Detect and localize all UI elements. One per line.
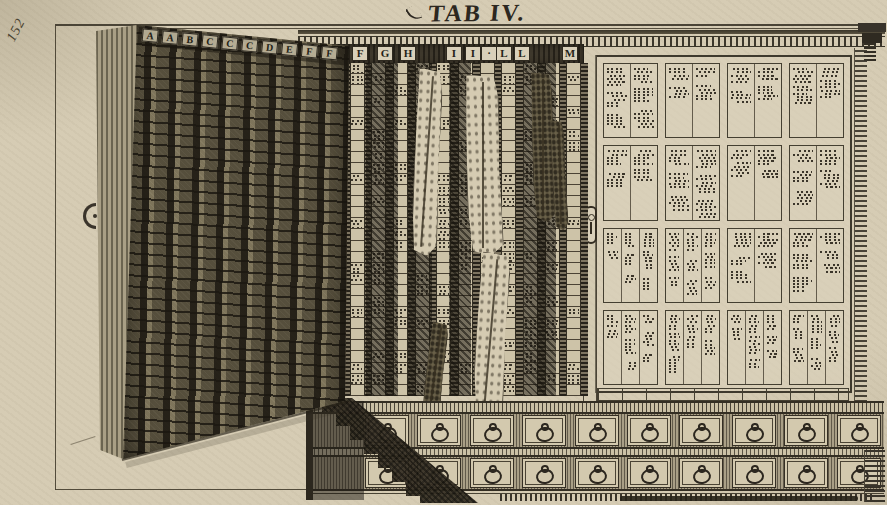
label-script-line (607, 160, 620, 162)
cell-label-specks (504, 242, 515, 244)
label-column (745, 311, 763, 384)
label-script-line (609, 254, 618, 256)
label-script-line (764, 170, 778, 172)
label-column (604, 311, 621, 384)
compartment-cell (351, 296, 364, 307)
label-panel (665, 310, 720, 385)
label-text-block (758, 86, 778, 101)
label-script-line (670, 186, 689, 188)
label-text-block (820, 233, 840, 245)
label-script-line (688, 245, 698, 247)
label-script-line (707, 321, 716, 323)
label-script-line (830, 321, 840, 323)
label-text-block (731, 162, 751, 177)
label-script-line (645, 233, 654, 235)
label-script-line (824, 177, 840, 179)
compartment-cell (351, 152, 364, 163)
compartment-cell (567, 152, 580, 163)
label-script-line (669, 362, 677, 364)
label-text-block (829, 315, 840, 327)
label-text-block (607, 173, 627, 188)
label-script-line (731, 91, 744, 93)
right-label-panel (595, 55, 852, 393)
label-text-block (696, 85, 716, 100)
cell-label-specks (440, 212, 449, 214)
label-text-block (820, 150, 840, 165)
label-text-block (643, 315, 654, 323)
compartment-cell (502, 363, 515, 374)
label-column (604, 229, 621, 302)
label-text-block (758, 253, 778, 268)
label-script-line (625, 242, 634, 244)
cell-label-specks (351, 220, 362, 222)
label-script-line (812, 328, 822, 330)
label-column (639, 229, 657, 302)
label-column (639, 311, 657, 384)
label-text-block (793, 233, 813, 248)
cell-label-specks (351, 279, 362, 281)
label-script-line (733, 154, 751, 156)
label-script-line (735, 233, 751, 235)
cabinet-right-edge-hatch (854, 48, 867, 412)
ring-pull-icon (535, 425, 555, 442)
compartment-cell (351, 241, 364, 252)
label-script-line (749, 363, 758, 365)
label-script-line (634, 75, 650, 77)
label-script-line (750, 359, 760, 361)
label-script-line (751, 315, 760, 317)
cell-label-specks (439, 187, 449, 189)
compartment-cell (567, 329, 580, 340)
door-letter: C (201, 34, 218, 48)
label-script-line (811, 347, 820, 349)
cell-label-specks (439, 242, 449, 244)
label-script-line (795, 331, 804, 333)
label-script-line (669, 269, 679, 271)
label-script-line (628, 368, 636, 370)
label-script-line (832, 354, 840, 356)
label-script-line (669, 368, 677, 370)
label-panel (727, 63, 782, 138)
label-script-line (758, 245, 773, 247)
label-script-line (832, 341, 840, 343)
label-script-line (731, 97, 750, 99)
label-text-block (625, 275, 636, 283)
label-script-line (676, 90, 689, 92)
label-script-line (646, 338, 654, 340)
cell-label-specks (438, 65, 450, 67)
label-script-line (705, 344, 712, 346)
label-script-line (767, 328, 776, 330)
label-script-line (731, 277, 748, 279)
cell-label-specks (568, 76, 579, 78)
label-column (816, 64, 843, 137)
cell-label-specks (353, 65, 362, 67)
compartment-cell (351, 318, 364, 329)
label-script-line (734, 321, 742, 323)
compartment-cell (502, 229, 515, 240)
label-script-line (645, 236, 654, 238)
label-script-line (793, 286, 806, 288)
compartment-cell (502, 141, 515, 152)
compartment-cell (351, 96, 364, 107)
drawer-rail-top (306, 401, 884, 414)
label-script-line (607, 236, 617, 238)
cell-label-specks (504, 253, 514, 255)
ring-pull-icon (797, 468, 817, 485)
drawer (522, 458, 566, 488)
label-script-line (607, 71, 623, 73)
label-column (621, 311, 639, 384)
label-panel (727, 145, 782, 220)
compartment-cell (351, 141, 364, 152)
cell-label-specks (505, 364, 514, 366)
drawer (470, 415, 514, 446)
label-text-block (625, 233, 636, 248)
label-script-line (701, 160, 716, 162)
plate-scratch (70, 436, 95, 445)
drawer (732, 415, 776, 446)
label-script-line (824, 264, 840, 266)
label-script-line (629, 362, 636, 364)
label-script-line (758, 262, 774, 264)
label-script-line (690, 321, 698, 323)
label-script-line (669, 173, 688, 175)
label-text-block (687, 315, 698, 333)
compartment-cell (567, 285, 580, 296)
compartment-cell (351, 252, 364, 263)
label-script-line (820, 236, 837, 238)
label-script-line (608, 251, 618, 253)
label-script-line (822, 75, 840, 77)
label-script-line (708, 325, 716, 327)
label-column (604, 146, 630, 219)
label-script-line (707, 315, 716, 317)
label-script-line (669, 343, 679, 345)
label-text-block (634, 88, 654, 103)
label-script-line (614, 99, 627, 101)
label-script-line (825, 233, 840, 235)
label-column (754, 146, 781, 219)
label-script-line (705, 259, 715, 261)
label-text-block (643, 354, 654, 362)
base-right-plinth (864, 450, 885, 502)
cell-label-specks (569, 142, 579, 144)
label-text-block (793, 348, 804, 363)
label-script-line (607, 102, 620, 104)
label-script-line (673, 205, 689, 207)
label-script-line (825, 83, 840, 85)
compartment-cell (567, 207, 580, 218)
label-script-line (793, 86, 808, 88)
label-script-line (793, 328, 800, 330)
label-script-line (825, 239, 840, 241)
label-script-line (702, 154, 716, 156)
label-script-line (671, 236, 680, 238)
label-text-block (634, 110, 654, 128)
label-script-line (625, 263, 633, 265)
cell-label-specks (569, 135, 579, 137)
label-script-line (643, 285, 650, 287)
label-script-line (698, 200, 716, 202)
label-script-line (824, 174, 840, 176)
label-script-line (644, 245, 654, 247)
label-script-line (732, 94, 751, 96)
label-script-line (645, 354, 654, 356)
label-script-line (689, 266, 698, 268)
label-script-line (699, 71, 716, 73)
cell-label-specks (351, 123, 363, 125)
label-script-line (749, 331, 758, 333)
compartment-cell (351, 185, 364, 196)
label-script-line (758, 160, 776, 162)
label-script-line (793, 203, 809, 205)
label-script-line (731, 260, 746, 262)
label-script-line (691, 315, 698, 317)
label-text-block (705, 277, 716, 289)
door-letter: E (281, 42, 298, 56)
label-text-block (749, 315, 760, 333)
label-script-line (701, 213, 716, 215)
column-divider-hatch (581, 63, 588, 396)
label-script-line (644, 242, 654, 244)
label-script-line (827, 254, 840, 256)
label-script-line (762, 78, 778, 80)
label-script-line (765, 266, 778, 268)
label-script-line (634, 113, 653, 115)
label-script-line (699, 191, 716, 193)
compartment-cell (567, 241, 580, 252)
label-script-line (758, 163, 771, 165)
shelf-letter: G (377, 46, 393, 61)
label-script-line (820, 86, 837, 88)
label-script-line (793, 277, 809, 279)
compartment-cell (351, 329, 364, 340)
compartment-cell (481, 63, 494, 74)
label-script-line (607, 315, 614, 317)
label-text-block (607, 114, 627, 129)
label-script-line (669, 333, 679, 335)
cell-label-specks (438, 309, 450, 311)
label-script-line (645, 257, 654, 259)
compartment-cell (502, 107, 515, 118)
cell-label-specks (438, 179, 450, 181)
compartment-cell (351, 307, 364, 318)
label-script-line (687, 242, 696, 244)
label-script-line (763, 239, 778, 241)
label-script-line (760, 157, 778, 159)
cell-label-specks (439, 190, 449, 192)
label-column (604, 64, 630, 137)
shelf-letter: I (446, 46, 462, 61)
label-text-block (758, 170, 778, 178)
compartment-cell (567, 118, 580, 129)
label-script-line (705, 353, 715, 355)
label-script-line (793, 283, 808, 285)
label-script-line (760, 242, 778, 244)
label-script-line (634, 68, 648, 70)
label-text-block (625, 254, 636, 266)
open-door (120, 23, 352, 463)
drawer (732, 458, 776, 488)
label-script-line (699, 216, 716, 218)
label-script-line (607, 92, 623, 94)
label-text-block (687, 336, 698, 348)
label-script-line (793, 257, 808, 259)
label-script-line (629, 365, 636, 367)
label-script-line (706, 281, 716, 283)
label-text-block (758, 68, 778, 80)
drawer (417, 415, 461, 446)
label-script-line (626, 328, 636, 330)
cell-label-specks (504, 379, 513, 381)
label-script-line (795, 337, 804, 339)
label-panel (603, 63, 658, 138)
label-script-line (737, 162, 751, 164)
label-script-line (699, 157, 716, 159)
label-panel (727, 310, 782, 385)
label-script-line (731, 271, 744, 273)
label-script-line (705, 287, 713, 289)
ring-pull-icon (745, 468, 765, 485)
label-script-line (607, 336, 617, 338)
label-script-line (749, 321, 759, 323)
label-script-line (626, 318, 636, 320)
label-script-line (769, 339, 778, 341)
compartment-cell (567, 274, 580, 285)
label-script-line (625, 349, 632, 351)
label-script-line (645, 321, 654, 323)
cell-label-specks (439, 320, 449, 322)
label-script-line (687, 343, 695, 345)
label-script-line (737, 281, 751, 283)
compartment-cell (502, 374, 515, 385)
page-number: 152 (0, 7, 33, 53)
label-script-line (769, 325, 778, 327)
door-letter: F (301, 44, 318, 58)
cell-label-specks (440, 231, 448, 233)
cell-label-specks (568, 223, 579, 225)
label-script-line (767, 336, 777, 338)
label-script-line (820, 163, 838, 165)
label-script-line (767, 315, 775, 317)
compartment-cell (351, 130, 364, 141)
label-text-block (669, 333, 680, 351)
cell-label-specks (353, 223, 362, 225)
label-column (728, 229, 754, 302)
label-text-block (669, 87, 689, 99)
cell-label-specks (504, 201, 514, 203)
label-text-block (705, 253, 716, 268)
label-script-line (829, 334, 839, 336)
label-script-line (797, 96, 813, 98)
cell-label-specks (439, 201, 450, 203)
cell-label-specks (504, 79, 513, 81)
label-script-line (705, 242, 715, 244)
label-script-line (699, 188, 716, 190)
label-script-line (793, 245, 811, 247)
label-script-line (793, 180, 810, 182)
label-script-line (625, 343, 635, 345)
label-text-block (625, 339, 636, 354)
cornice-band (298, 30, 885, 34)
cell-label-specks (504, 87, 513, 89)
label-column (790, 64, 816, 137)
label-column (807, 311, 825, 384)
label-script-line (609, 81, 627, 83)
compartment-column (566, 63, 581, 396)
label-script-line (735, 236, 751, 238)
compartment-cell (567, 374, 580, 385)
cell-label-specks (569, 220, 579, 222)
label-script-line (762, 173, 778, 175)
label-script-line (670, 318, 680, 320)
label-text-block (820, 251, 840, 259)
shelf-letter: L (514, 46, 530, 61)
compartment-cell (351, 351, 364, 362)
label-column (701, 229, 719, 302)
label-script-line (696, 203, 712, 205)
compartment-cell (351, 263, 364, 274)
drawer (679, 415, 723, 446)
label-script-line (644, 239, 654, 241)
label-script-line (641, 110, 654, 112)
compartment-cell (351, 118, 364, 129)
label-script-line (643, 254, 653, 256)
label-text-block (758, 233, 778, 248)
label-panel (789, 63, 844, 138)
label-text-block (634, 68, 654, 83)
label-script-line (793, 280, 812, 282)
label-panel (665, 145, 720, 220)
label-script-line (625, 233, 634, 235)
label-column (683, 229, 701, 302)
drawer (575, 458, 619, 488)
label-text-block (731, 233, 751, 248)
label-script-line (688, 269, 698, 271)
compartment-cell (351, 63, 364, 74)
label-text-block (687, 280, 698, 295)
label-text-block (793, 86, 813, 104)
cell-label-specks (438, 175, 449, 177)
cell-label-specks (352, 375, 362, 377)
shelf-letter: M (562, 46, 578, 61)
label-script-line (811, 341, 819, 343)
label-script-line (833, 315, 840, 317)
label-text-block (607, 315, 618, 327)
compartment-cell (567, 107, 580, 118)
label-script-line (643, 315, 651, 317)
compartment-cell (567, 163, 580, 174)
label-text-block (731, 271, 751, 283)
compartment-cell (567, 185, 580, 196)
label-script-line (634, 94, 653, 96)
label-text-block (669, 68, 689, 80)
label-script-line (669, 87, 685, 89)
cell-label-specks (353, 268, 362, 270)
label-text-block (811, 315, 822, 333)
label-script-line (736, 242, 751, 244)
door-letter: A (142, 28, 159, 42)
label-script-line (797, 197, 813, 199)
label-script-line (638, 120, 654, 122)
cell-label-specks (438, 68, 450, 70)
label-column (754, 64, 781, 137)
cell-label-specks (504, 76, 514, 78)
label-script-line (641, 123, 654, 125)
cell-label-specks (568, 368, 580, 370)
label-script-line (669, 260, 678, 262)
